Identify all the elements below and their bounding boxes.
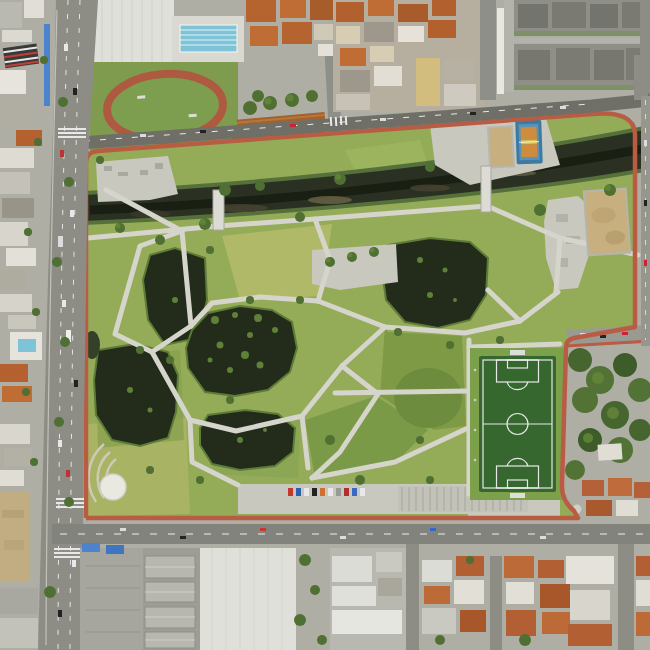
dirt-lot bbox=[0, 492, 30, 582]
south-parking-lot bbox=[80, 548, 145, 650]
small-pool bbox=[18, 339, 36, 352]
soccer-field bbox=[470, 348, 564, 500]
dirt-field bbox=[584, 189, 630, 256]
pond-northeast bbox=[382, 238, 488, 328]
east-road bbox=[641, 96, 650, 346]
bus-canopy-rows bbox=[145, 556, 195, 648]
northeast-street bbox=[634, 55, 648, 100]
sand-court bbox=[488, 126, 514, 167]
park-aerial-svg bbox=[0, 0, 650, 650]
south-street-1 bbox=[406, 544, 419, 650]
goal-north bbox=[510, 350, 525, 355]
pond-southwest bbox=[94, 344, 178, 446]
aerial-photo bbox=[0, 0, 650, 650]
corner-skate-plaza bbox=[96, 156, 178, 202]
goal-south bbox=[510, 493, 525, 498]
swimming-pool bbox=[180, 25, 237, 52]
south-road bbox=[52, 524, 650, 544]
yellow-building bbox=[416, 58, 440, 106]
apartment-blocks bbox=[514, 0, 650, 96]
walkway-canopy bbox=[497, 8, 504, 94]
bus-canopy bbox=[44, 24, 50, 106]
south-industrial bbox=[330, 548, 406, 650]
north-house-cluster bbox=[333, 0, 483, 112]
basketball-court bbox=[515, 120, 543, 165]
footbridge-east bbox=[481, 166, 491, 212]
helipad-circle bbox=[100, 474, 126, 500]
footbridge-west bbox=[213, 190, 224, 230]
